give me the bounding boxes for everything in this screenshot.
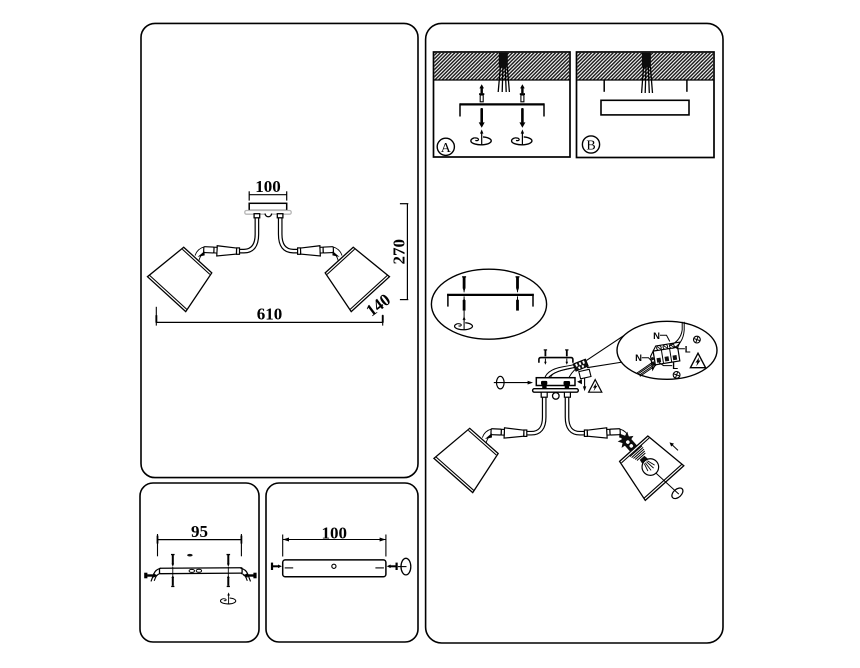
svg-text:L: L	[672, 361, 678, 372]
svg-text:N: N	[635, 353, 642, 364]
svg-text:610: 610	[257, 305, 283, 324]
svg-text:B: B	[586, 139, 595, 154]
svg-text:L: L	[685, 344, 691, 355]
svg-text:A: A	[441, 141, 452, 156]
svg-text:95: 95	[191, 522, 208, 541]
svg-text:N: N	[653, 331, 660, 342]
svg-text:100: 100	[255, 177, 281, 196]
svg-text:270: 270	[389, 239, 408, 264]
